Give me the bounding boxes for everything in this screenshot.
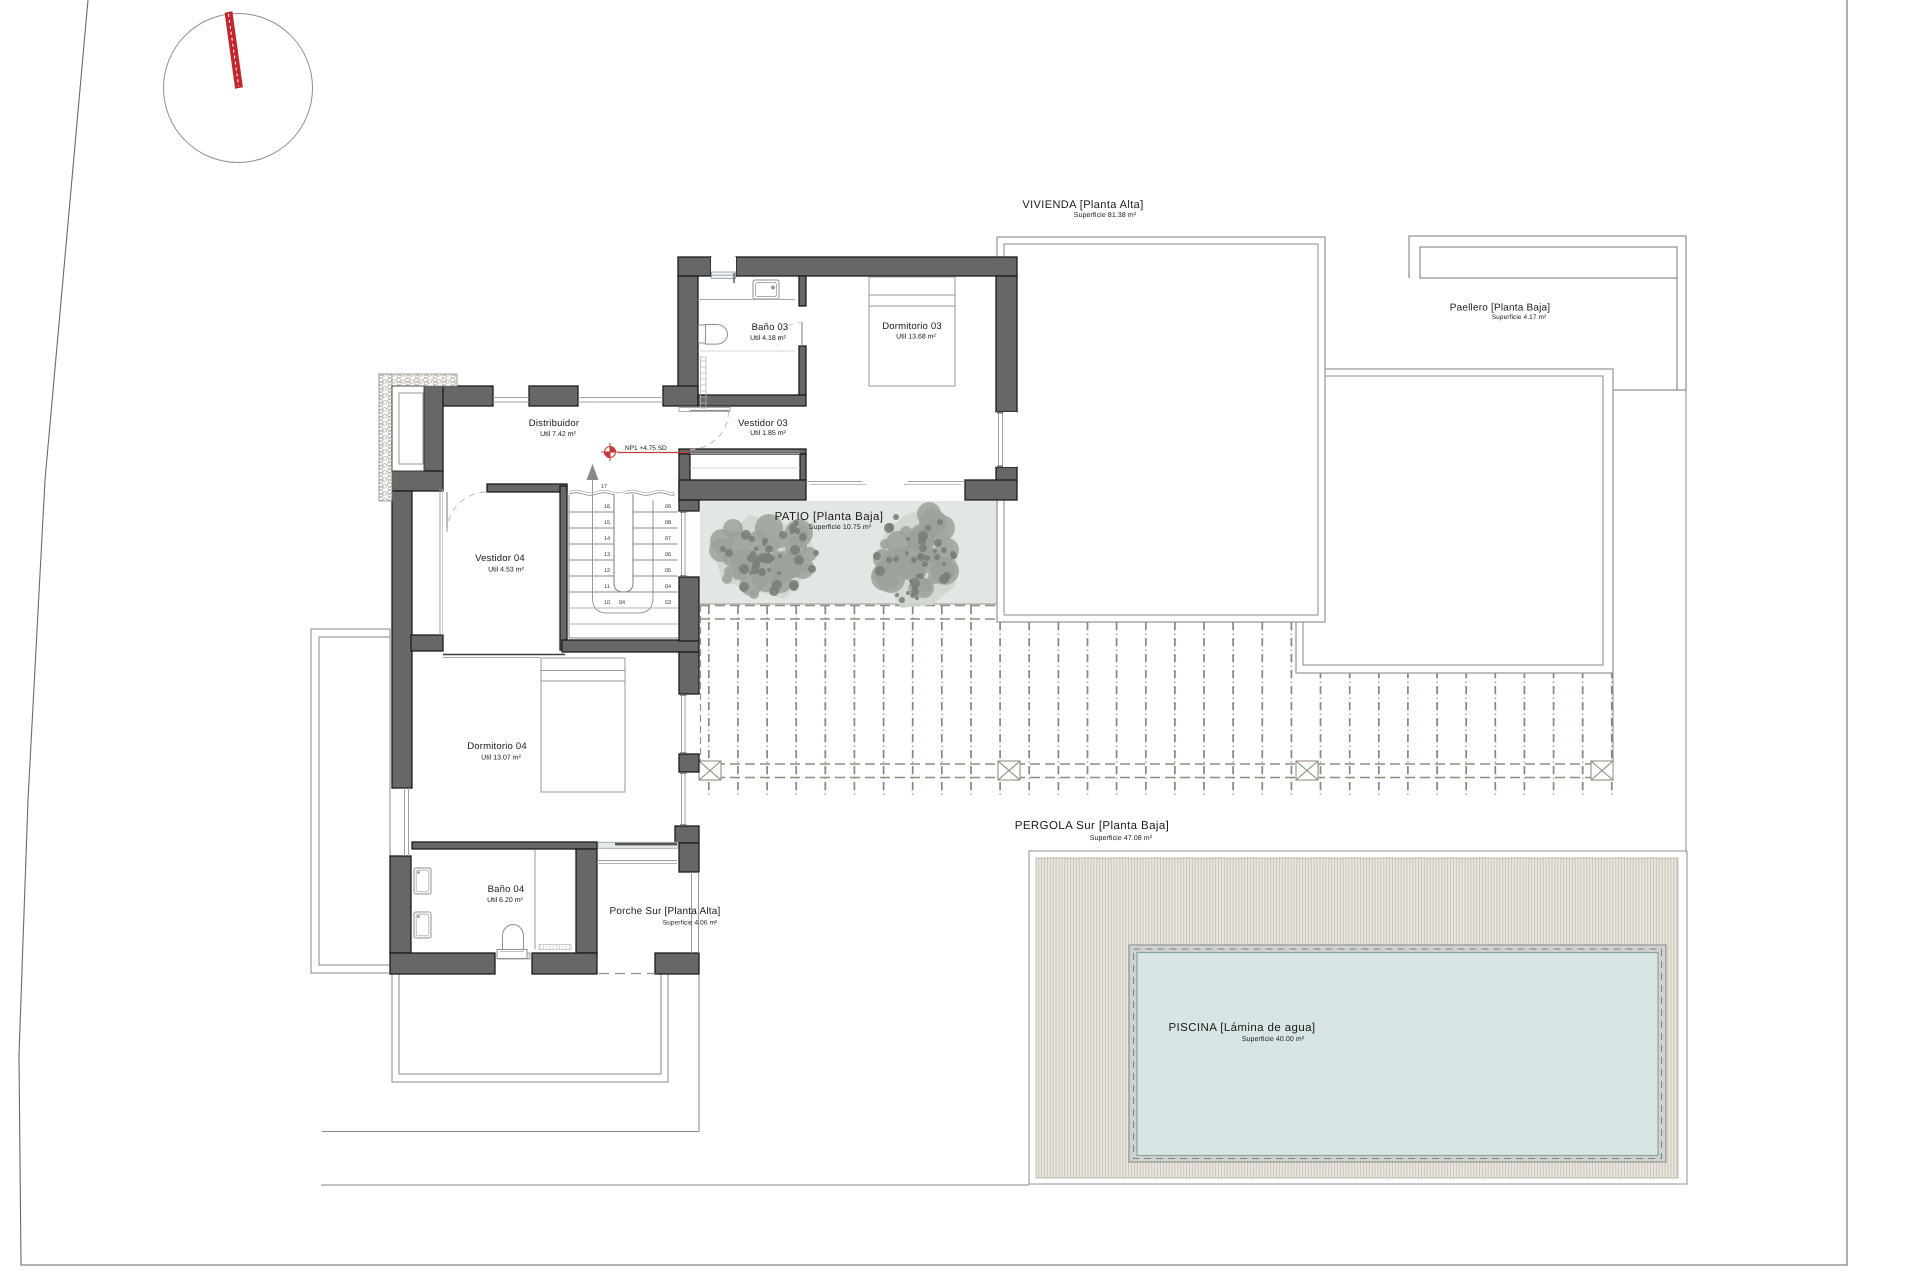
svg-text:Util 13.07 m²: Util 13.07 m² (481, 754, 521, 762)
svg-text:Vestidor 03: Vestidor 03 (738, 418, 788, 429)
svg-text:Dormitorio 04: Dormitorio 04 (467, 741, 527, 752)
svg-text:Util 6.20 m²: Util 6.20 m² (487, 896, 523, 904)
svg-text:Util 13.68 m²: Util 13.68 m² (896, 333, 936, 341)
svg-text:Superficie 47.08 m²: Superficie 47.08 m² (1090, 834, 1153, 842)
svg-text:Superficie 10.75 m²: Superficie 10.75 m² (809, 523, 872, 531)
svg-text:16: 16 (604, 504, 610, 510)
svg-text:06: 06 (665, 552, 671, 558)
svg-text:04: 04 (665, 584, 671, 590)
svg-text:Util 7.42 m²: Util 7.42 m² (540, 430, 576, 438)
svg-text:12: 12 (604, 568, 610, 574)
svg-text:Superficie 4.17 m²: Superficie 4.17 m² (1492, 314, 1547, 321)
svg-text:Superficie 4.06 m²: Superficie 4.06 m² (663, 920, 718, 927)
svg-text:Vestidor 04: Vestidor 04 (475, 553, 525, 564)
svg-text:Dormitorio 03: Dormitorio 03 (882, 321, 942, 332)
svg-text:10: 10 (604, 600, 610, 606)
svg-text:05: 05 (665, 568, 671, 574)
svg-text:Porche Sur [Planta Alta]: Porche Sur [Planta Alta] (610, 906, 721, 917)
svg-text:Superficie 81.38 m²: Superficie 81.38 m² (1074, 211, 1137, 219)
svg-text:04: 04 (619, 600, 625, 606)
svg-text:Util 4.53 m²: Util 4.53 m² (488, 566, 524, 574)
svg-text:Paellero [Planta Baja]: Paellero [Planta Baja] (1450, 303, 1551, 314)
svg-text:NP1 +4.75 SD: NP1 +4.75 SD (625, 445, 667, 452)
svg-text:07: 07 (665, 536, 671, 542)
svg-text:13: 13 (604, 552, 610, 558)
svg-text:Superficie 40.00 m²: Superficie 40.00 m² (1242, 1035, 1305, 1043)
svg-text:14: 14 (604, 536, 610, 542)
svg-text:11: 11 (604, 584, 610, 590)
svg-text:VIVIENDA [Planta Alta]: VIVIENDA [Planta Alta] (1022, 199, 1143, 211)
svg-text:08: 08 (665, 520, 671, 526)
svg-text:PERGOLA Sur [Planta Baja]: PERGOLA Sur [Planta Baja] (1015, 820, 1169, 832)
svg-text:PATIO [Planta Baja]: PATIO [Planta Baja] (775, 511, 884, 523)
svg-text:Baño 03: Baño 03 (752, 322, 789, 333)
svg-text:PISCINA [Lámina de agua]: PISCINA [Lámina de agua] (1168, 1022, 1315, 1034)
svg-text:Distribuidor: Distribuidor (529, 418, 579, 429)
svg-text:Util 4.18 m²: Util 4.18 m² (750, 334, 786, 342)
svg-text:03: 03 (665, 600, 671, 606)
svg-text:Util 1.85 m²: Util 1.85 m² (750, 429, 786, 437)
svg-text:Baño 04: Baño 04 (488, 884, 525, 895)
svg-text:17: 17 (601, 484, 607, 490)
svg-text:15: 15 (604, 520, 610, 526)
svg-text:09: 09 (665, 504, 671, 510)
